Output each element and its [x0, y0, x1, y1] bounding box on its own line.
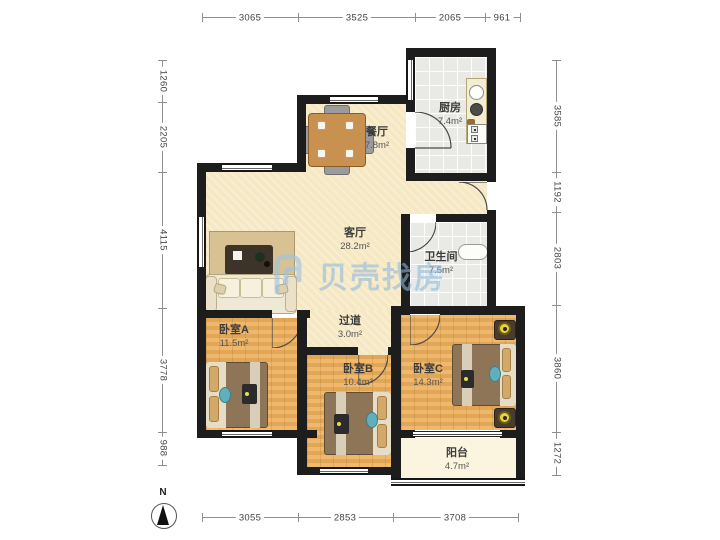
- dim-right-3: 2803: [552, 244, 563, 272]
- wall: [436, 214, 496, 222]
- bedroom-c-door-arc: [410, 315, 440, 345]
- bed-c-pillow: [502, 348, 511, 372]
- dim-tick: [415, 13, 416, 22]
- room-area: 28.2m²: [325, 241, 385, 253]
- dim-tick: [552, 60, 561, 61]
- dim-tick: [158, 172, 167, 173]
- dim-top-3: 2065: [436, 13, 464, 24]
- bedroom-b-window: [320, 467, 368, 475]
- stove-burner: [471, 135, 478, 142]
- room-label-balcony: 阳台 4.7m²: [427, 447, 487, 473]
- dim-tick: [158, 102, 167, 103]
- dim-tick: [552, 172, 561, 173]
- room-name: 餐厅: [347, 126, 407, 140]
- room-name: 卧室B: [328, 363, 388, 377]
- wall: [297, 95, 306, 172]
- room-label-hallway: 过道 3.0m²: [320, 315, 380, 341]
- bed-b-pillow: [377, 424, 387, 448]
- dim-tick: [552, 305, 561, 306]
- table-decor: [255, 252, 265, 262]
- table-decor: [233, 251, 242, 260]
- wall: [406, 48, 496, 57]
- dim-tick: [552, 475, 561, 476]
- dim-tick: [518, 513, 519, 522]
- dim-right-1: 3585: [552, 102, 563, 130]
- dim-left-3: 4115: [158, 226, 169, 254]
- dim-tick: [158, 465, 167, 466]
- dim-right-5: 1272: [552, 439, 563, 467]
- wall: [440, 306, 525, 315]
- dim-left-5: 988: [158, 437, 169, 460]
- balcony-sliding-door: [413, 431, 502, 437]
- bed-c-accent-pillow: [489, 366, 501, 382]
- room-name: 过道: [320, 315, 380, 329]
- bed-c-tv: [461, 370, 474, 388]
- bed-a-pillow: [209, 366, 219, 392]
- bed-a-accent-pillow: [219, 387, 231, 403]
- wall: [197, 163, 206, 438]
- beike-logo-icon: [272, 252, 304, 296]
- room-name: 客厅: [325, 227, 385, 241]
- dim-tick: [298, 13, 299, 22]
- wall: [297, 310, 307, 475]
- living-window: [222, 163, 272, 172]
- dim-top-2: 3525: [343, 13, 371, 24]
- room-label-living: 客厅 28.2m²: [325, 227, 385, 253]
- dim-tick: [158, 432, 167, 433]
- room-area: 7.4m²: [420, 116, 480, 128]
- bed-a-tv: [242, 384, 257, 404]
- bathroom-door-arc: [406, 222, 436, 252]
- entry-door-arc: [459, 182, 488, 211]
- wall: [500, 430, 525, 438]
- wall: [307, 347, 358, 355]
- wall: [516, 306, 525, 438]
- room-area: 4.7m²: [427, 461, 487, 473]
- dim-tick: [202, 13, 203, 22]
- watermark-brand-text: 贝壳找房: [318, 253, 446, 297]
- dim-tick: [552, 432, 561, 433]
- room-name: 阳台: [427, 447, 487, 461]
- dim-tick: [485, 13, 486, 22]
- dim-tick: [202, 513, 203, 522]
- dim-tick: [393, 513, 394, 522]
- room-name: 厨房: [420, 102, 480, 116]
- bed-c-pillow: [502, 375, 511, 399]
- sofa-cushion: [240, 278, 262, 298]
- table-setting: [317, 121, 326, 130]
- room-area: 7.8m²: [347, 140, 407, 152]
- compass-north-label: N: [159, 487, 166, 498]
- dim-left-2: 2205: [158, 123, 169, 151]
- dim-left-4: 3778: [158, 356, 169, 384]
- room-area: 11.5m²: [204, 338, 264, 350]
- room-area: 14.3m²: [398, 377, 458, 389]
- dim-top-1: 3065: [236, 13, 264, 24]
- dim-top-4: 961: [491, 13, 514, 24]
- room-label-bedroom-b: 卧室B 10.4m²: [328, 363, 388, 389]
- bed-b-accent-pillow: [366, 412, 378, 428]
- wall: [197, 310, 272, 318]
- dim-tick: [298, 513, 299, 522]
- nightstand-lamp: [498, 411, 511, 424]
- room-name: 卧室A: [204, 324, 264, 338]
- dim-bottom-3: 3708: [441, 513, 469, 524]
- bed-b-pillow: [377, 396, 387, 420]
- dim-left-1: 1260: [158, 67, 169, 95]
- wall: [487, 210, 496, 306]
- dim-bottom-2: 2853: [331, 513, 359, 524]
- wall: [388, 347, 401, 355]
- coffee-table: [225, 245, 273, 275]
- room-name: 卧室C: [398, 363, 458, 377]
- sofa-arm: [205, 276, 217, 312]
- dim-bottom-1: 3055: [236, 513, 264, 524]
- dim-right-2: 1192: [552, 178, 563, 206]
- room-area: 10.4m²: [328, 377, 388, 389]
- dim-tick: [158, 308, 167, 309]
- room-label-bedroom-c: 卧室C 14.3m²: [398, 363, 458, 389]
- table-decor: [264, 261, 270, 267]
- table-setting: [317, 149, 326, 158]
- living-side-window: [197, 217, 206, 267]
- dim-right-4: 3860: [552, 354, 563, 382]
- nightstand-lamp: [498, 322, 511, 335]
- wall: [487, 48, 496, 182]
- bedroom-a-window: [222, 430, 272, 438]
- dining-window: [330, 95, 378, 104]
- bed-b-tv: [334, 414, 349, 434]
- balcony-railing-window: [391, 478, 525, 486]
- dim-tick: [520, 13, 521, 22]
- room-label-bedroom-a: 卧室A 11.5m²: [204, 324, 264, 350]
- room-label-kitchen: 厨房 7.4m²: [420, 102, 480, 128]
- kitchen-sink: [469, 85, 484, 100]
- compass-needle-icon: [157, 505, 169, 525]
- bed-a-pillow: [209, 396, 219, 422]
- floor-plan: 餐厅 7.8m² 厨房 7.4m² 客厅 28.2m² 卫生间 7.5m² 过道…: [0, 0, 720, 540]
- kitchen-pass-window: [406, 60, 415, 100]
- dim-line-left: [162, 60, 163, 465]
- wall: [391, 430, 415, 438]
- room-label-dining: 餐厅 7.8m²: [347, 126, 407, 152]
- room-area: 3.0m²: [320, 329, 380, 341]
- wall: [406, 173, 496, 181]
- dim-tick: [158, 60, 167, 61]
- dim-tick: [552, 212, 561, 213]
